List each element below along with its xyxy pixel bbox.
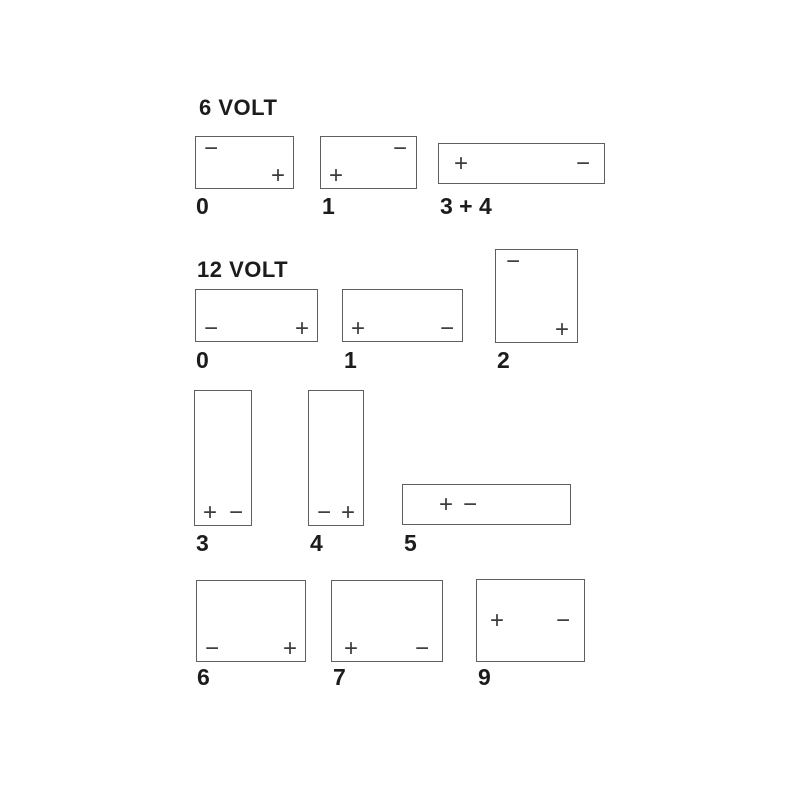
layout-label-12v-3: 3 xyxy=(196,530,209,556)
positive-terminal: + xyxy=(555,319,569,341)
positive-terminal: + xyxy=(271,165,285,187)
negative-terminal: − xyxy=(576,153,590,175)
positive-terminal: + xyxy=(351,318,365,340)
negative-terminal: − xyxy=(229,502,243,524)
positive-terminal: + xyxy=(203,502,217,524)
section-title-6-volt: 6 VOLT xyxy=(199,96,277,120)
battery-box-12v-type-9: + − xyxy=(476,579,585,662)
negative-terminal: − xyxy=(440,318,454,340)
layout-label-12v-5: 5 xyxy=(404,530,417,556)
battery-box-12v-type-7: + − xyxy=(331,580,443,662)
negative-terminal: − xyxy=(506,251,520,273)
battery-box-12v-type-2: − + xyxy=(495,249,578,343)
positive-terminal: + xyxy=(344,638,358,660)
battery-box-12v-type-4: − + xyxy=(308,390,364,526)
section-title-12-volt: 12 VOLT xyxy=(197,258,288,282)
negative-terminal: − xyxy=(415,638,429,660)
positive-terminal: + xyxy=(329,165,343,187)
negative-terminal: − xyxy=(463,494,477,516)
positive-terminal: + xyxy=(439,494,453,516)
battery-box-12v-type-0: − + xyxy=(195,289,318,342)
negative-terminal: − xyxy=(204,138,218,160)
battery-box-12v-type-5: + − xyxy=(402,484,571,525)
battery-terminal-layout-diagram: 6 VOLT − + 0 + − 1 + − 3 + 4 12 VOLT − +… xyxy=(0,0,800,800)
negative-terminal: − xyxy=(317,502,331,524)
battery-box-12v-type-1: + − xyxy=(342,289,463,342)
positive-terminal: + xyxy=(490,610,504,632)
positive-terminal: + xyxy=(295,318,309,340)
battery-box-6v-type-1: + − xyxy=(320,136,417,189)
positive-terminal: + xyxy=(283,638,297,660)
battery-box-12v-type-6: − + xyxy=(196,580,306,662)
layout-label-12v-4: 4 xyxy=(310,530,323,556)
negative-terminal: − xyxy=(204,318,218,340)
negative-terminal: − xyxy=(205,638,219,660)
layout-label-12v-1: 1 xyxy=(344,347,357,373)
layout-label-6v-0: 0 xyxy=(196,193,209,219)
layout-label-12v-6: 6 xyxy=(197,664,210,690)
layout-label-12v-9: 9 xyxy=(478,664,491,690)
battery-box-12v-type-3: + − xyxy=(194,390,252,526)
battery-box-6v-type-3-4: + − xyxy=(438,143,605,184)
layout-label-12v-0: 0 xyxy=(196,347,209,373)
layout-label-12v-2: 2 xyxy=(497,347,510,373)
battery-box-6v-type-0: − + xyxy=(195,136,294,189)
negative-terminal: − xyxy=(556,610,570,632)
layout-label-6v-1: 1 xyxy=(322,193,335,219)
negative-terminal: − xyxy=(393,138,407,160)
layout-label-12v-7: 7 xyxy=(333,664,346,690)
layout-label-6v-3-4: 3 + 4 xyxy=(440,193,492,219)
positive-terminal: + xyxy=(341,502,355,524)
positive-terminal: + xyxy=(454,153,468,175)
